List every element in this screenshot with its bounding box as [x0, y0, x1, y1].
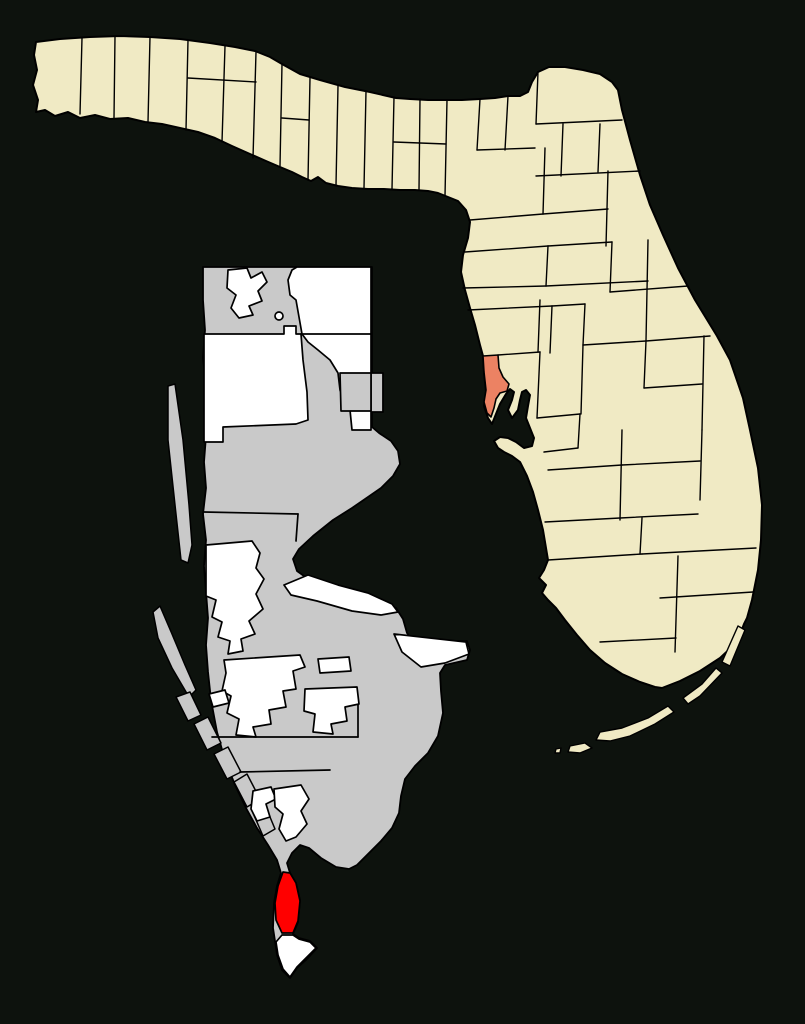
- municipality-shape: [204, 326, 308, 442]
- municipality-shape: [275, 312, 283, 320]
- municipality-shape: [209, 690, 229, 707]
- key-island: [555, 748, 561, 753]
- locator-map-canvas: [0, 0, 805, 1024]
- unincorporated-patch: [340, 373, 371, 411]
- municipality-shape: [318, 657, 351, 673]
- locator-map: [0, 0, 805, 1024]
